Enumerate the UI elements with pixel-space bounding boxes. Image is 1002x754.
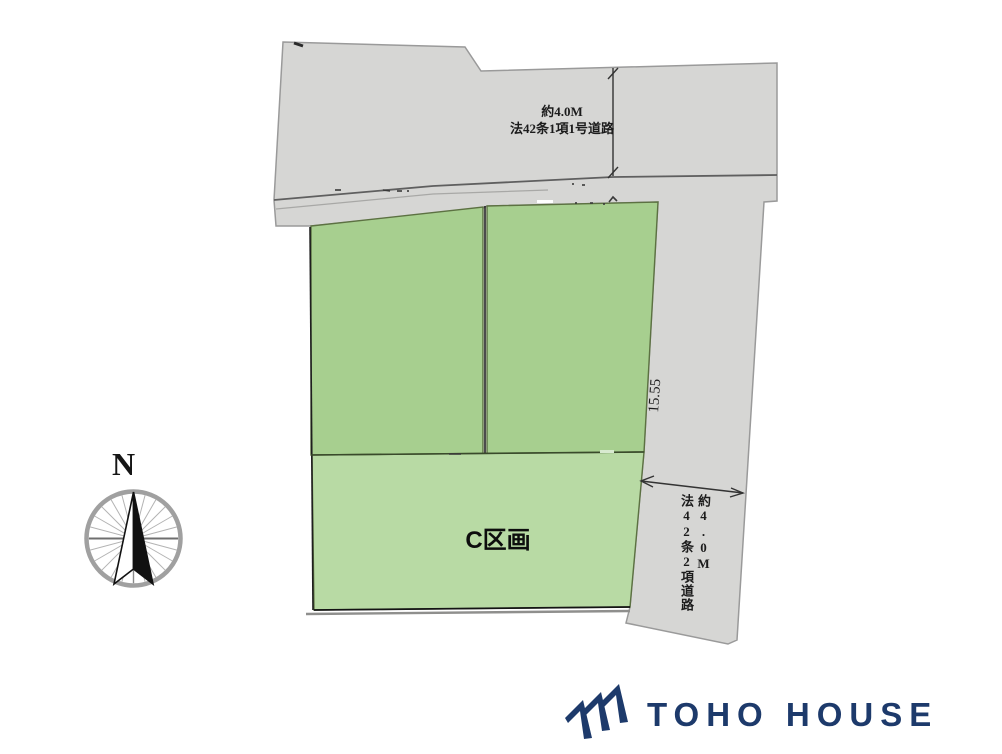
compass-north-label: N: [112, 446, 135, 483]
boundary-gap-mark: [537, 200, 553, 203]
road-top-width: 約4.0M: [474, 103, 650, 120]
plot-bottom-shadow: [306, 611, 630, 614]
road-right-label: 約4.0M 法42条2項道路: [678, 494, 712, 606]
compass: [87, 492, 181, 586]
plot-c-label: C区画: [402, 520, 594, 555]
logo-text: TOHO HOUSE: [647, 696, 938, 734]
logo-mark-icon: [565, 684, 628, 739]
land-plot-diagram: 約4.0M 法42条1項1号道路 約4.0M 法42条2項道路 15.55 C区…: [0, 0, 1002, 754]
road-right-name: 法42条2項道路: [678, 494, 695, 606]
road-top-name: 法42条1項1号道路: [474, 120, 650, 137]
road-right-width: 約4.0M: [695, 494, 712, 606]
plot-upper-left: [311, 207, 483, 455]
boundary-dot-mark: [600, 450, 614, 453]
dimension-length-label: 15.55: [646, 362, 666, 413]
road-top-label: 約4.0M 法42条1項1号道路: [474, 103, 650, 137]
plot-upper-right: [487, 202, 658, 454]
